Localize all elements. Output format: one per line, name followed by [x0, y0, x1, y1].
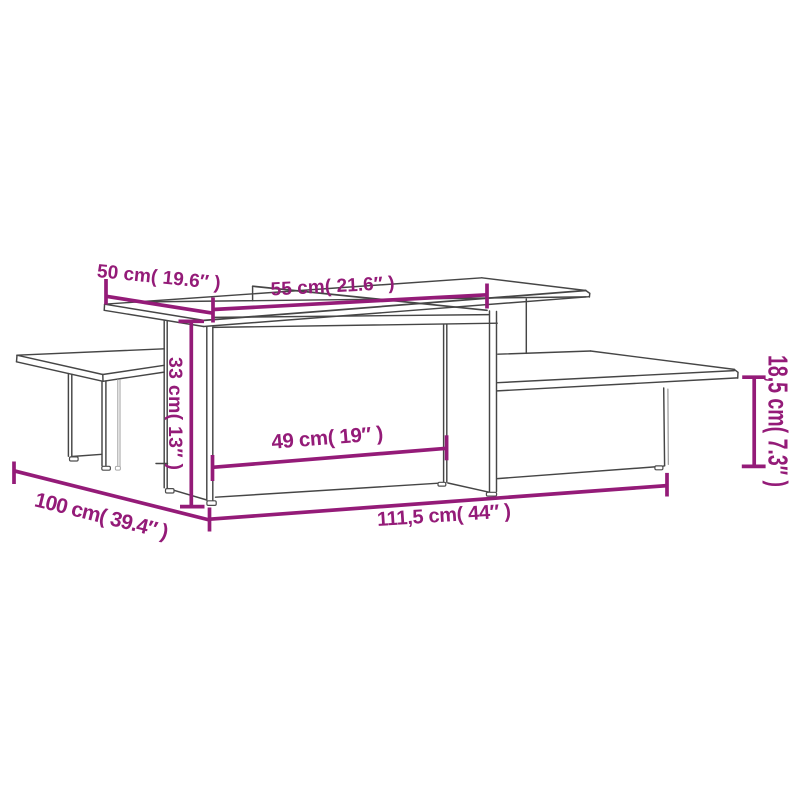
svg-text:33 cm( 13″ ): 33 cm( 13″ ) [164, 357, 186, 470]
svg-text:18,5 cm( 7.3″ ): 18,5 cm( 7.3″ ) [763, 355, 794, 487]
